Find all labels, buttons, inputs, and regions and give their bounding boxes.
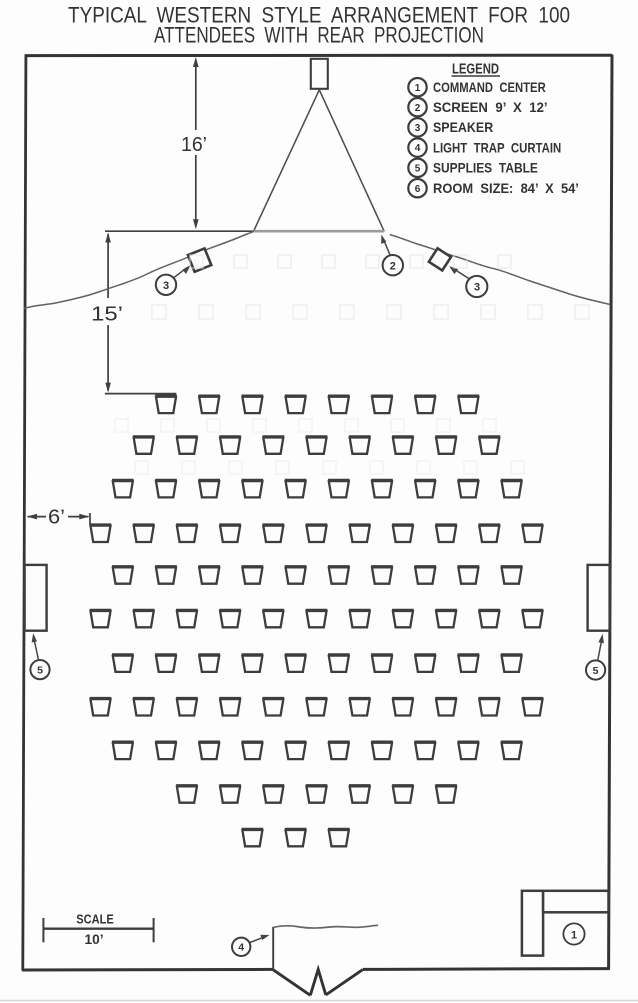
- svg-text:COMMAND CENTER: COMMAND CENTER: [433, 79, 546, 95]
- svg-text:3: 3: [415, 123, 421, 134]
- svg-text:LIGHT TRAP CURTAIN: LIGHT TRAP CURTAIN: [433, 139, 561, 155]
- svg-text:3: 3: [163, 280, 169, 292]
- svg-text:ATTENDEES WITH REAR PROJECTION: ATTENDEES WITH REAR PROJECTION: [154, 22, 484, 47]
- svg-text:6’: 6’: [48, 506, 65, 529]
- svg-text:SUPPLIES TABLE: SUPPLIES TABLE: [433, 160, 538, 176]
- svg-text:5: 5: [37, 665, 43, 677]
- svg-text:6: 6: [415, 184, 421, 195]
- svg-text:10’: 10’: [85, 931, 104, 947]
- svg-text:5: 5: [593, 665, 599, 677]
- svg-text:4: 4: [415, 143, 421, 154]
- svg-text:2: 2: [415, 103, 421, 114]
- svg-text:4: 4: [238, 942, 244, 954]
- svg-text:LEGEND: LEGEND: [452, 62, 499, 78]
- svg-text:1: 1: [415, 83, 421, 94]
- svg-text:5: 5: [415, 163, 421, 174]
- svg-text:SCALE: SCALE: [76, 911, 114, 926]
- svg-text:1: 1: [571, 929, 577, 941]
- svg-text:ROOM SIZE: 84’ X 54’: ROOM SIZE: 84’ X 54’: [433, 180, 579, 196]
- svg-text:16’: 16’: [181, 134, 207, 156]
- svg-text:15’: 15’: [91, 303, 123, 326]
- svg-text:3: 3: [474, 282, 480, 294]
- svg-text:2: 2: [390, 260, 396, 272]
- svg-text:SCREEN 9’ X 12’: SCREEN 9’ X 12’: [433, 99, 548, 115]
- svg-text:SPEAKER: SPEAKER: [433, 119, 493, 135]
